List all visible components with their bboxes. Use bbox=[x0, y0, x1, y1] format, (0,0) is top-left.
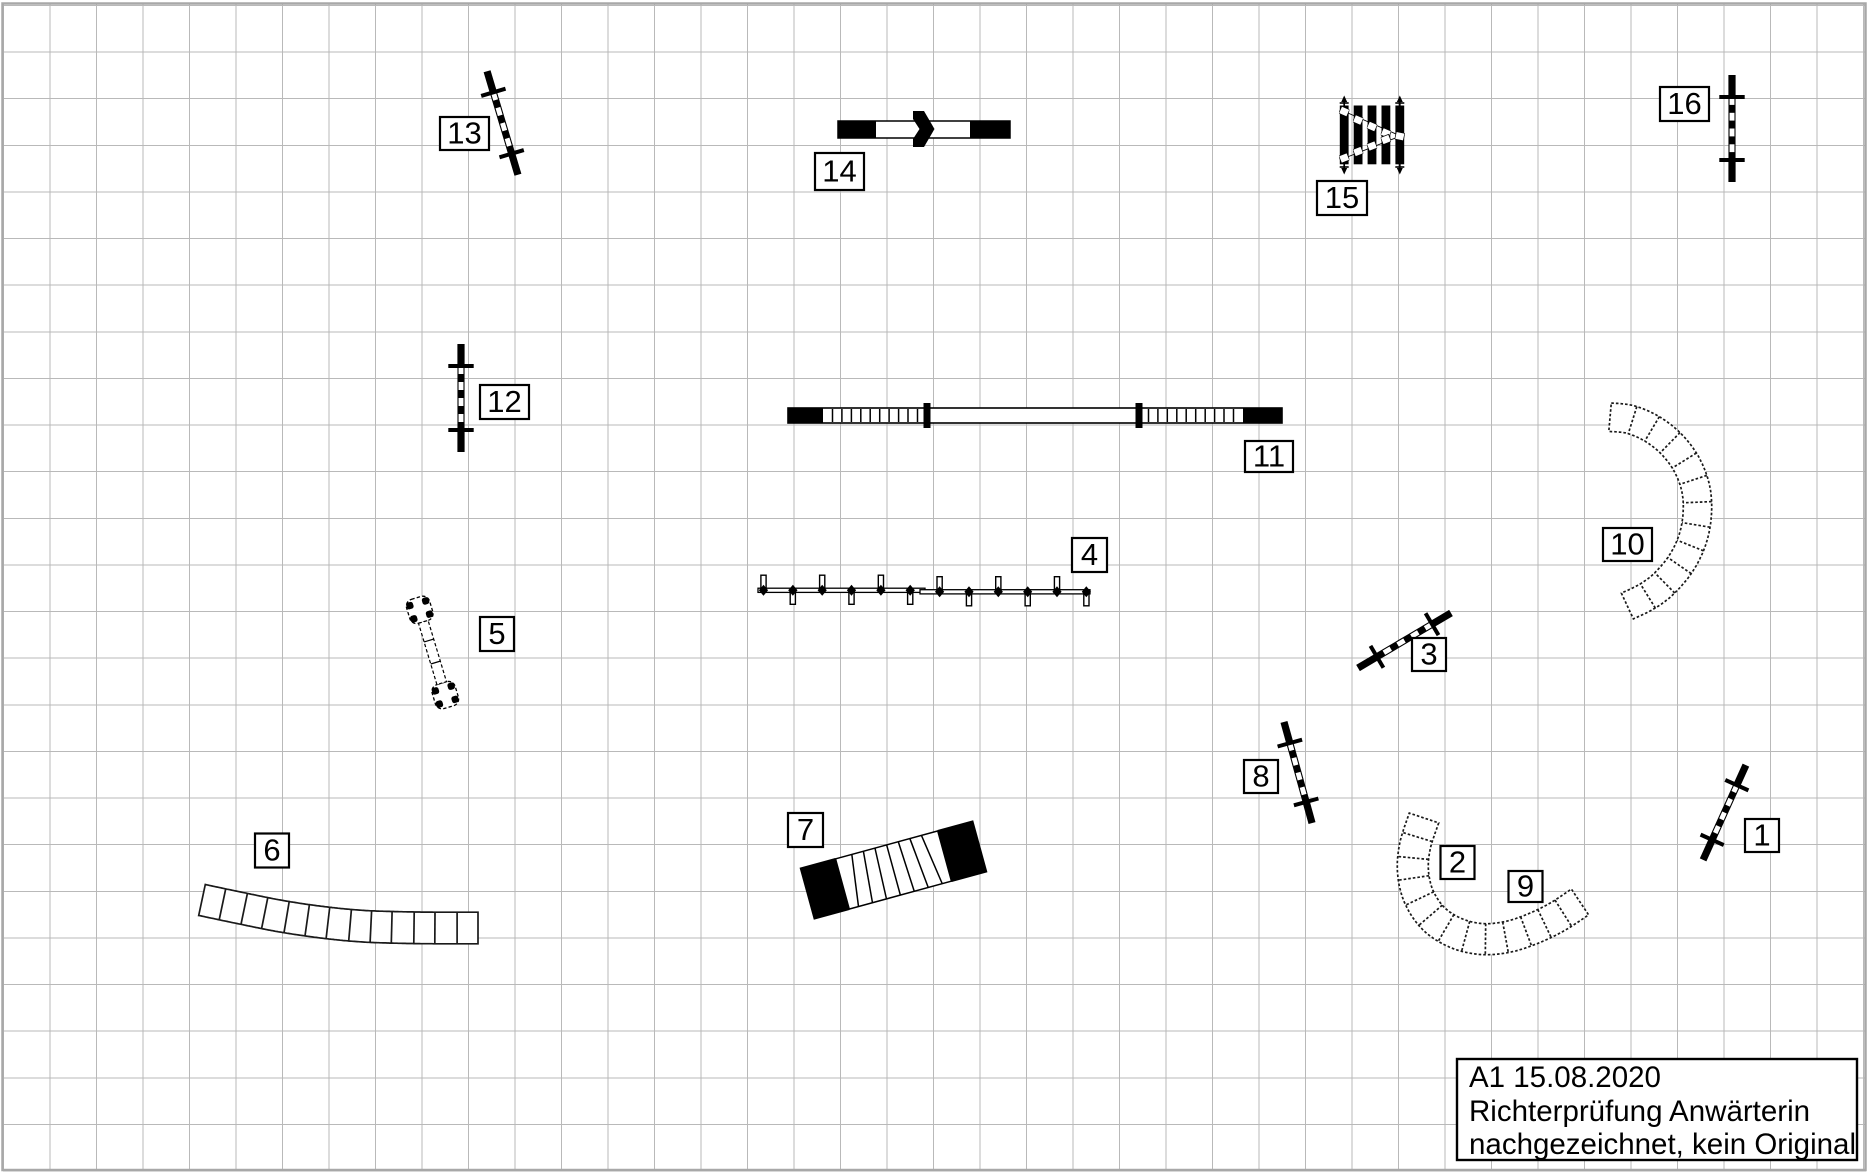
svg-text:14: 14 bbox=[822, 154, 856, 189]
svg-text:5: 5 bbox=[488, 616, 505, 651]
svg-text:10: 10 bbox=[1610, 527, 1644, 562]
svg-text:2: 2 bbox=[1449, 845, 1466, 880]
svg-text:15: 15 bbox=[1325, 180, 1359, 215]
svg-text:9: 9 bbox=[1517, 869, 1534, 904]
svg-text:4: 4 bbox=[1081, 537, 1098, 572]
svg-text:3: 3 bbox=[1420, 637, 1437, 672]
svg-text:11: 11 bbox=[1253, 439, 1285, 474]
svg-text:A1 15.08.2020: A1 15.08.2020 bbox=[1469, 1061, 1661, 1094]
svg-text:nachgezeichnet, kein Original: nachgezeichnet, kein Original bbox=[1469, 1128, 1856, 1161]
svg-text:6: 6 bbox=[263, 833, 280, 868]
svg-text:8: 8 bbox=[1252, 759, 1269, 794]
svg-text:16: 16 bbox=[1667, 86, 1701, 121]
svg-text:7: 7 bbox=[797, 812, 814, 847]
svg-text:12: 12 bbox=[487, 384, 521, 419]
svg-text:1: 1 bbox=[1753, 818, 1770, 853]
svg-text:13: 13 bbox=[447, 116, 481, 151]
svg-text:Richterprüfung Anwärterin: Richterprüfung Anwärterin bbox=[1469, 1095, 1810, 1128]
